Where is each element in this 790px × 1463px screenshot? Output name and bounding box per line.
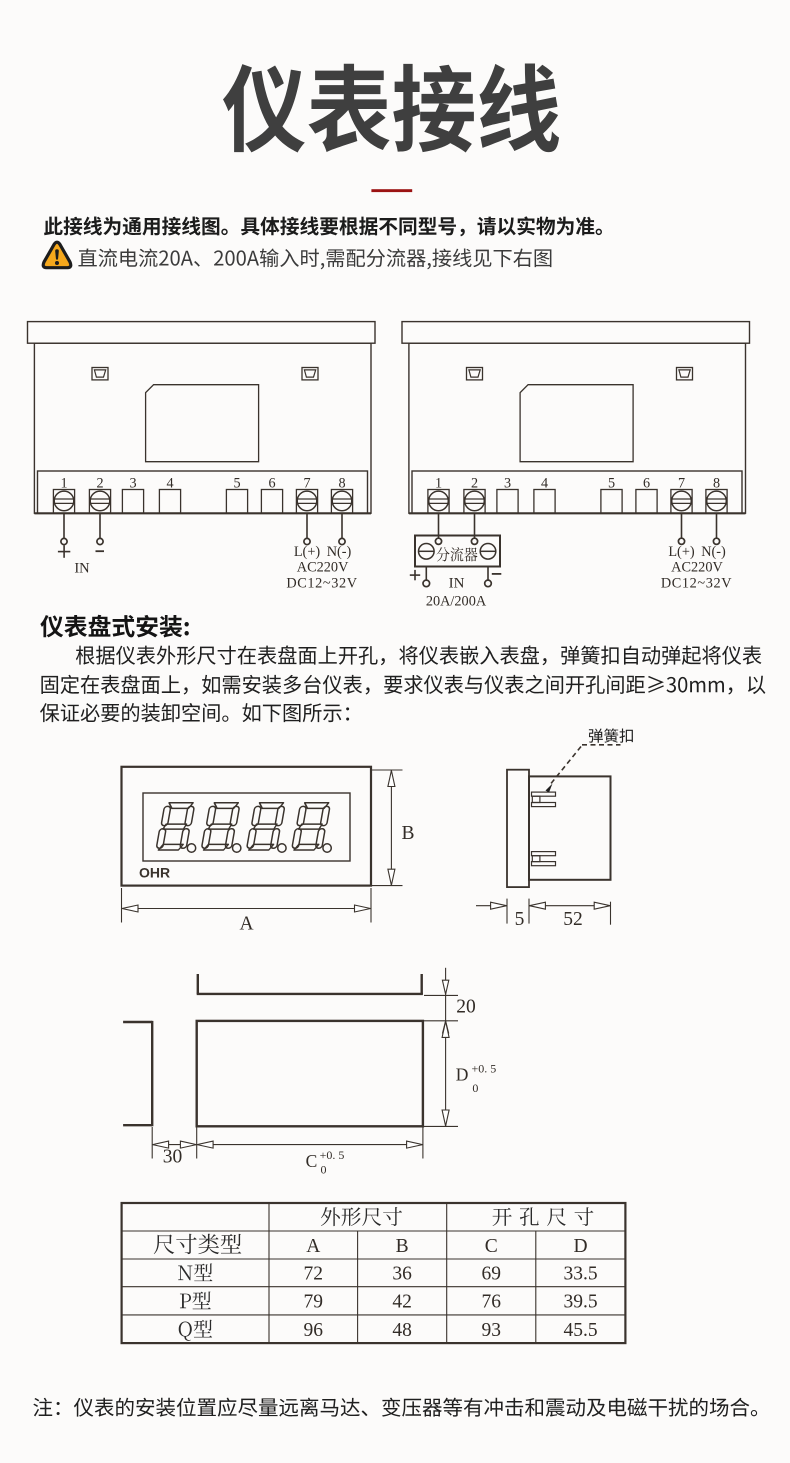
svg-text:DC12~32V: DC12~32V bbox=[661, 575, 732, 591]
svg-text:DC12~32V: DC12~32V bbox=[286, 575, 357, 591]
svg-text:2: 2 bbox=[471, 475, 478, 491]
svg-text:76: 76 bbox=[481, 1292, 501, 1313]
svg-text:1: 1 bbox=[435, 475, 442, 491]
svg-text:79: 79 bbox=[304, 1292, 324, 1313]
svg-text:IN: IN bbox=[449, 576, 465, 592]
svg-text:72: 72 bbox=[304, 1264, 324, 1285]
svg-text:2: 2 bbox=[96, 475, 103, 491]
svg-text:3: 3 bbox=[504, 475, 511, 491]
svg-text:D: D bbox=[456, 1065, 469, 1085]
svg-text:7: 7 bbox=[303, 475, 310, 491]
svg-text:8: 8 bbox=[338, 475, 345, 491]
svg-text:B: B bbox=[396, 1236, 409, 1257]
svg-text:3: 3 bbox=[129, 475, 136, 491]
svg-text:L(+): L(+) bbox=[668, 544, 695, 560]
svg-text:0: 0 bbox=[472, 1081, 478, 1095]
svg-text:7: 7 bbox=[678, 475, 685, 491]
svg-text:33.5: 33.5 bbox=[564, 1264, 598, 1285]
svg-text:52: 52 bbox=[563, 909, 583, 930]
svg-text:D: D bbox=[574, 1236, 588, 1257]
svg-text:+0. 5: +0. 5 bbox=[472, 1062, 497, 1076]
svg-text:1: 1 bbox=[60, 475, 67, 491]
svg-text:B: B bbox=[401, 823, 414, 844]
svg-text:6: 6 bbox=[643, 475, 650, 491]
svg-text:OHR: OHR bbox=[139, 864, 170, 880]
svg-text:39.5: 39.5 bbox=[564, 1292, 598, 1313]
svg-text:4: 4 bbox=[541, 475, 548, 491]
svg-text:36: 36 bbox=[392, 1264, 412, 1285]
svg-text:5: 5 bbox=[233, 475, 240, 491]
svg-text:L(+): L(+) bbox=[294, 544, 321, 560]
svg-text:93: 93 bbox=[481, 1320, 501, 1341]
svg-text:48: 48 bbox=[392, 1320, 412, 1341]
svg-text:A: A bbox=[239, 914, 253, 935]
svg-text:IN: IN bbox=[74, 561, 90, 577]
svg-text:6: 6 bbox=[268, 475, 275, 491]
svg-text:C: C bbox=[306, 1151, 318, 1171]
svg-text:96: 96 bbox=[304, 1320, 324, 1341]
svg-text:69: 69 bbox=[481, 1264, 501, 1285]
svg-text:42: 42 bbox=[392, 1292, 412, 1313]
svg-text:AC220V: AC220V bbox=[297, 559, 349, 575]
svg-text:N(-): N(-) bbox=[701, 544, 726, 560]
svg-text:+0. 5: +0. 5 bbox=[320, 1148, 345, 1162]
svg-text:5: 5 bbox=[608, 475, 615, 491]
svg-text:AC220V: AC220V bbox=[671, 559, 723, 575]
svg-text:45.5: 45.5 bbox=[564, 1320, 598, 1341]
svg-text:20: 20 bbox=[456, 997, 476, 1018]
svg-text:5: 5 bbox=[515, 909, 525, 930]
svg-text:8: 8 bbox=[713, 475, 720, 491]
svg-text:20A/200A: 20A/200A bbox=[426, 594, 487, 610]
svg-text:4: 4 bbox=[166, 475, 173, 491]
svg-text:30: 30 bbox=[163, 1147, 183, 1168]
svg-text:A: A bbox=[306, 1236, 320, 1257]
svg-text:C: C bbox=[485, 1236, 498, 1257]
svg-text:N(-): N(-) bbox=[327, 544, 352, 560]
svg-text:0: 0 bbox=[321, 1163, 327, 1177]
